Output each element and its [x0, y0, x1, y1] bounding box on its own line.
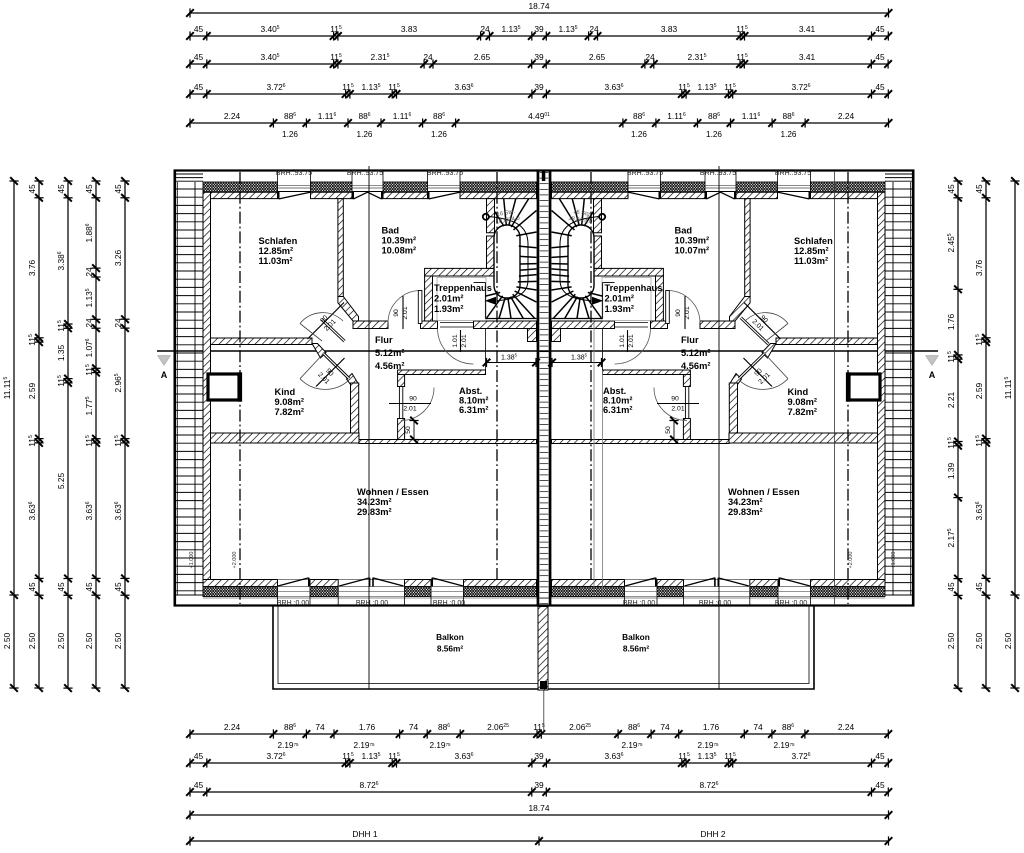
svg-text:Treppenhaus: Treppenhaus [434, 283, 492, 293]
svg-text:24: 24 [423, 52, 433, 62]
svg-text:90: 90 [671, 396, 679, 403]
svg-text:BRH.:93.75: BRH.:93.75 [276, 170, 312, 177]
svg-text:DHH 1: DHH 1 [352, 829, 377, 839]
svg-text:45: 45 [875, 24, 885, 34]
svg-text:39: 39 [534, 52, 544, 62]
svg-text:1.26: 1.26 [781, 130, 797, 139]
svg-text:2.50: 2.50 [84, 633, 94, 650]
svg-text:45: 45 [194, 780, 204, 790]
svg-text:45: 45 [194, 52, 204, 62]
svg-text:5.12m²: 5.12m² [375, 348, 404, 358]
svg-text:1.76: 1.76 [359, 722, 376, 732]
svg-text:29.83m²: 29.83m² [728, 507, 763, 517]
svg-text:BRH.:93.75: BRH.:93.75 [427, 170, 463, 177]
svg-text:2.59: 2.59 [27, 383, 37, 400]
svg-text:3.41: 3.41 [799, 52, 816, 62]
svg-text:Balkon: Balkon [436, 632, 464, 642]
svg-text:2.50: 2.50 [974, 633, 984, 650]
svg-text:34.23m²: 34.23m² [728, 497, 763, 507]
svg-text:90: 90 [675, 309, 682, 317]
svg-text:BRH :0.00: BRH :0.00 [277, 600, 309, 607]
svg-text:45: 45 [194, 751, 204, 761]
svg-text:8.10m²: 8.10m² [459, 396, 488, 406]
svg-text:2.01: 2.01 [402, 306, 409, 319]
svg-text:6.31m²: 6.31m² [459, 405, 488, 415]
svg-text:45: 45 [27, 184, 37, 194]
svg-text:74: 74 [660, 722, 670, 732]
svg-text:1.76: 1.76 [703, 722, 720, 732]
svg-text:BRH.:93.75: BRH.:93.75 [347, 170, 383, 177]
svg-text:9.08m²: 9.08m² [275, 397, 304, 407]
svg-text:11.115: 11.115 [1003, 377, 1013, 400]
svg-text:4.56m²: 4.56m² [681, 361, 710, 371]
svg-text:3.76: 3.76 [27, 260, 37, 277]
svg-text:1.26: 1.26 [282, 130, 298, 139]
svg-text:1.01: 1.01 [452, 334, 459, 347]
svg-text:8.56m²: 8.56m² [623, 644, 650, 654]
svg-text:45: 45 [875, 751, 885, 761]
svg-text:Flur: Flur [375, 335, 393, 345]
svg-text:BRH :0.00: BRH :0.00 [699, 600, 731, 607]
svg-text:12.85m²: 12.85m² [794, 246, 829, 256]
svg-text:Bad: Bad [382, 226, 400, 236]
svg-text:2.50: 2.50 [56, 633, 66, 650]
svg-text:2.01: 2.01 [671, 406, 684, 413]
svg-text:18.74: 18.74 [529, 803, 550, 813]
svg-text:9.08m²: 9.08m² [788, 397, 817, 407]
svg-text:2.59: 2.59 [974, 383, 984, 400]
svg-text:2.24: 2.24 [838, 111, 855, 121]
svg-text:2.24: 2.24 [224, 111, 241, 121]
svg-text:2.01: 2.01 [628, 334, 635, 347]
svg-text:2.01m²: 2.01m² [434, 294, 463, 304]
svg-text:3.83: 3.83 [661, 24, 678, 34]
svg-text:74: 74 [753, 722, 763, 732]
svg-text:45: 45 [974, 582, 984, 592]
svg-text:Schlafen: Schlafen [794, 236, 833, 246]
svg-text:2.24: 2.24 [224, 722, 241, 732]
svg-text:45: 45 [946, 184, 956, 194]
svg-text:45: 45 [194, 24, 204, 34]
svg-text:2.21: 2.21 [946, 392, 956, 409]
svg-text:50: 50 [665, 426, 672, 434]
svg-text:5.25: 5.25 [56, 473, 66, 490]
svg-text:24: 24 [84, 267, 94, 277]
svg-text:Wohnen / Essen: Wohnen / Essen [728, 487, 800, 497]
svg-text:8.10m²: 8.10m² [603, 396, 632, 406]
svg-text:11.03m²: 11.03m² [794, 256, 828, 266]
svg-text:1.26: 1.26 [706, 130, 722, 139]
svg-text:24: 24 [645, 52, 655, 62]
svg-text:45: 45 [56, 582, 66, 592]
svg-text:45: 45 [113, 184, 123, 194]
svg-text:24: 24 [113, 318, 123, 328]
svg-text:2.50: 2.50 [1003, 633, 1013, 650]
svg-text:+2.000: +2.000 [232, 552, 238, 569]
svg-text:Schlafen: Schlafen [259, 236, 298, 246]
svg-text:45: 45 [113, 582, 123, 592]
svg-text:2.01: 2.01 [461, 334, 468, 347]
svg-text:39: 39 [534, 24, 544, 34]
svg-text:45: 45 [194, 82, 204, 92]
svg-text:3.41: 3.41 [799, 24, 816, 34]
svg-text:45: 45 [27, 582, 37, 592]
svg-text:2.01: 2.01 [403, 406, 416, 413]
svg-text:50: 50 [405, 426, 412, 434]
svg-text:2.50: 2.50 [113, 633, 123, 650]
svg-text:74: 74 [315, 722, 325, 732]
svg-text:6.31m²: 6.31m² [603, 405, 632, 415]
svg-text:5.12m²: 5.12m² [681, 348, 710, 358]
svg-text:39: 39 [534, 780, 544, 790]
svg-text:34.23m²: 34.23m² [357, 497, 392, 507]
svg-text:39: 39 [534, 82, 544, 92]
svg-text:BRH :0.00: BRH :0.00 [623, 600, 655, 607]
svg-text:1.39: 1.39 [946, 463, 956, 480]
svg-text:24: 24 [84, 318, 94, 328]
svg-text:45: 45 [875, 52, 885, 62]
svg-text:45: 45 [875, 82, 885, 92]
svg-text:Kind: Kind [275, 387, 296, 397]
svg-text:4.56m²: 4.56m² [375, 361, 404, 371]
svg-text:11.03m²: 11.03m² [259, 256, 293, 266]
svg-text:Kind: Kind [788, 387, 809, 397]
svg-text:DHH 2: DHH 2 [700, 829, 725, 839]
svg-text:A: A [929, 370, 936, 380]
svg-text:2.65: 2.65 [589, 52, 606, 62]
svg-text:2.50: 2.50 [2, 633, 12, 650]
svg-text:1.93m²: 1.93m² [434, 304, 463, 314]
svg-text:Treppenhaus: Treppenhaus [605, 283, 663, 293]
svg-text:1.26: 1.26 [431, 130, 447, 139]
svg-text:2.01m²: 2.01m² [605, 294, 634, 304]
svg-text:29.83m²: 29.83m² [357, 507, 392, 517]
svg-text:18.74: 18.74 [529, 1, 550, 11]
svg-text:8.56m²: 8.56m² [437, 644, 464, 654]
svg-text:1.76: 1.76 [946, 314, 956, 331]
svg-text:7.82m²: 7.82m² [275, 407, 304, 417]
svg-text:+1.000: +1.000 [189, 552, 195, 569]
svg-text:45: 45 [84, 582, 94, 592]
svg-text:1.93m²: 1.93m² [605, 304, 634, 314]
svg-text:7.82m²: 7.82m² [788, 407, 817, 417]
svg-text:39: 39 [534, 751, 544, 761]
svg-text:+1.000: +1.000 [891, 552, 897, 569]
svg-text:1.35: 1.35 [56, 345, 66, 362]
svg-text:Flur: Flur [681, 335, 699, 345]
svg-text:10.39m²: 10.39m² [382, 236, 417, 246]
svg-text:+2.000: +2.000 [848, 552, 854, 569]
svg-text:1.26: 1.26 [631, 130, 647, 139]
svg-text:1.26: 1.26 [357, 130, 373, 139]
svg-text:BRH :0.00: BRH :0.00 [433, 600, 465, 607]
svg-text:BRH :0.00: BRH :0.00 [775, 600, 807, 607]
svg-text:2.24: 2.24 [838, 722, 855, 732]
svg-text:Abst.: Abst. [459, 386, 482, 396]
svg-text:1.01: 1.01 [619, 334, 626, 347]
svg-text:10.39m²: 10.39m² [675, 236, 710, 246]
svg-text:3.76: 3.76 [974, 260, 984, 277]
svg-text:10.08m²: 10.08m² [382, 246, 417, 256]
svg-text:45: 45 [56, 184, 66, 194]
svg-text:24: 24 [480, 24, 490, 34]
svg-text:24: 24 [589, 24, 599, 34]
svg-text:45: 45 [974, 184, 984, 194]
svg-text:3.26: 3.26 [113, 250, 123, 267]
svg-text:90: 90 [409, 396, 417, 403]
svg-text:90: 90 [393, 309, 400, 317]
svg-text:2.65: 2.65 [474, 52, 491, 62]
svg-text:45: 45 [84, 184, 94, 194]
svg-text:12.85m²: 12.85m² [259, 246, 294, 256]
svg-text:BRH.:93.75: BRH.:93.75 [627, 170, 663, 177]
svg-text:2.01: 2.01 [684, 306, 691, 319]
svg-text:2.50: 2.50 [27, 633, 37, 650]
svg-text:74: 74 [409, 722, 419, 732]
svg-text:45: 45 [946, 582, 956, 592]
svg-text:BRH :0.00: BRH :0.00 [356, 600, 388, 607]
svg-text:45: 45 [875, 780, 885, 790]
svg-text:3.83: 3.83 [401, 24, 418, 34]
svg-text:BRH.:93.75: BRH.:93.75 [775, 170, 811, 177]
svg-text:Abst.: Abst. [603, 386, 626, 396]
svg-text:Wohnen / Essen: Wohnen / Essen [357, 487, 429, 497]
svg-text:Bad: Bad [675, 226, 693, 236]
svg-text:Balkon: Balkon [622, 632, 650, 642]
svg-text:11.115: 11.115 [2, 377, 12, 400]
svg-text:A: A [161, 370, 168, 380]
svg-text:BRH.:93.75: BRH.:93.75 [700, 170, 736, 177]
svg-text:10.07m²: 10.07m² [675, 246, 710, 256]
svg-text:2.50: 2.50 [946, 633, 956, 650]
